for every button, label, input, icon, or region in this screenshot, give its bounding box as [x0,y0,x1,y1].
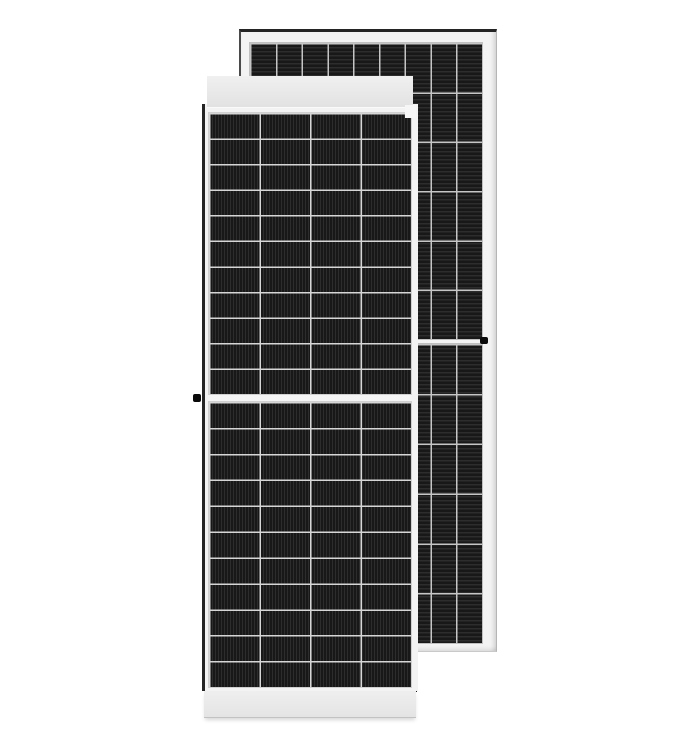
front-panel-cell-grid-bottom-half [208,401,412,688]
front-panel-bottom-frame [204,691,416,718]
front-panel-frame-body [202,104,418,691]
solar-panel-front [202,76,418,718]
grounding-dot-rear [480,337,488,344]
front-panel-cell-area [208,112,412,688]
front-panel-cell-grid-top-half [208,112,412,395]
front-panel-top-frame-step [405,105,416,118]
front-panel-top-frame [207,76,413,108]
grounding-dot-front [193,394,201,402]
product-image-canvas [0,0,684,748]
